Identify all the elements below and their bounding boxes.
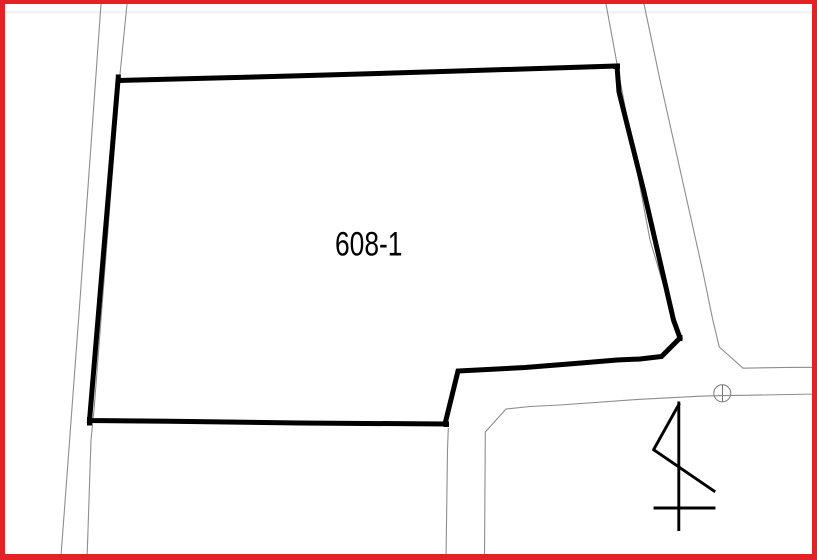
svg-text:608-1: 608-1 — [335, 224, 402, 263]
